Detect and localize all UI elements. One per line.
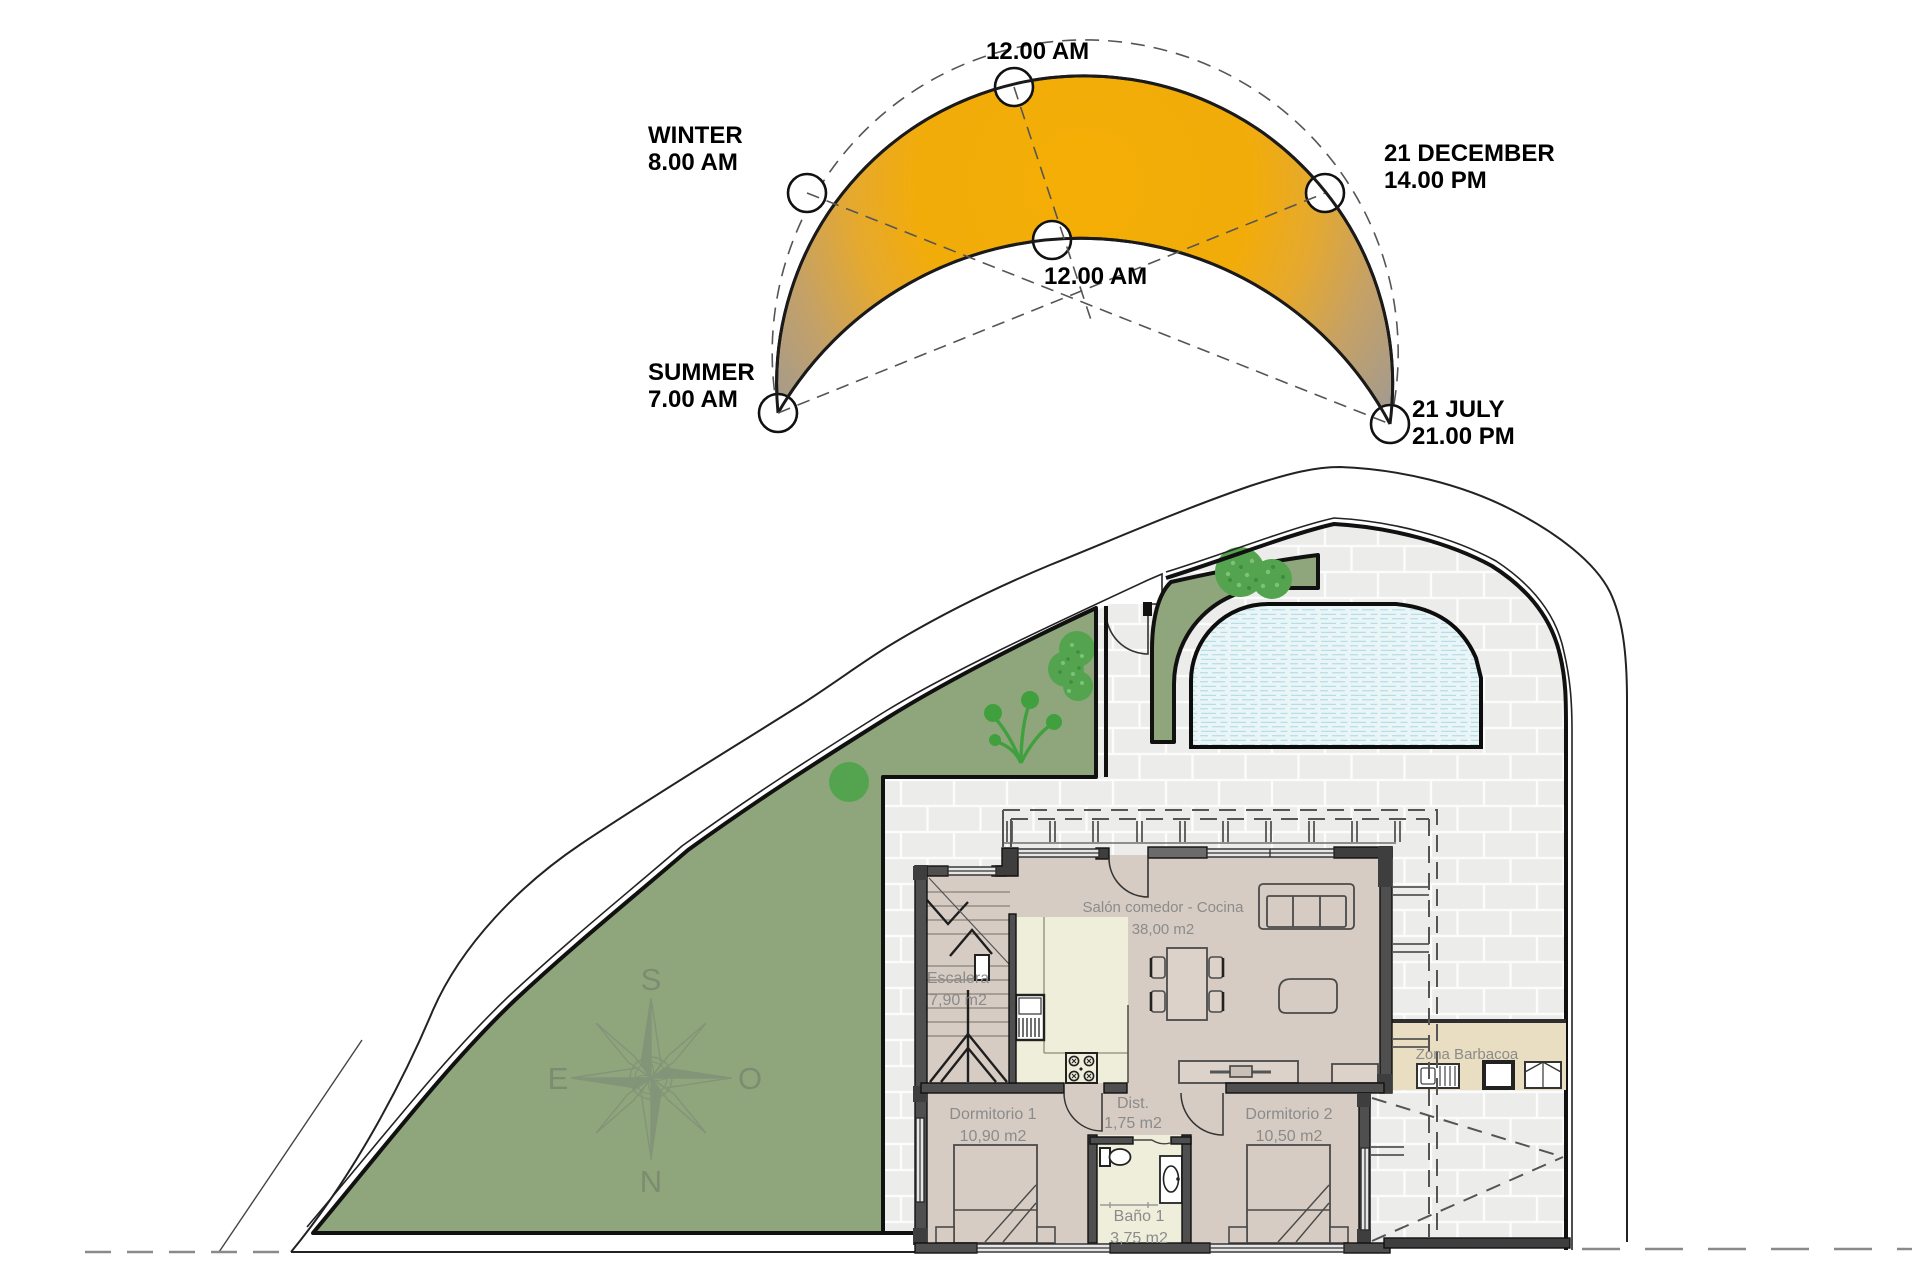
svg-text:Baño 1: Baño 1	[1114, 1208, 1165, 1225]
svg-text:Escalera: Escalera	[927, 970, 989, 987]
svg-text:O: O	[738, 1061, 762, 1096]
svg-text:12.00 AM: 12.00 AM	[986, 38, 1089, 65]
svg-text:7.00 AM: 7.00 AM	[648, 386, 738, 413]
svg-text:21 JULY: 21 JULY	[1412, 396, 1505, 423]
svg-text:8.00 AM: 8.00 AM	[648, 149, 738, 176]
svg-text:SUMMER: SUMMER	[648, 359, 755, 386]
svg-text:WINTER: WINTER	[648, 122, 743, 149]
svg-text:Dormitorio 1: Dormitorio 1	[949, 1106, 1036, 1123]
svg-text:1,75 m2: 1,75 m2	[1104, 1115, 1162, 1132]
svg-text:14.00 PM: 14.00 PM	[1384, 167, 1487, 194]
svg-text:21 DECEMBER: 21 DECEMBER	[1384, 140, 1555, 167]
svg-text:10,50 m2: 10,50 m2	[1256, 1128, 1323, 1145]
svg-text:Dist.: Dist.	[1117, 1095, 1149, 1112]
svg-text:Zona Barbacoa: Zona Barbacoa	[1416, 1046, 1519, 1063]
svg-text:Salón comedor - Cocina: Salón comedor - Cocina	[1083, 899, 1245, 916]
svg-text:E: E	[548, 1061, 569, 1096]
svg-text:38,00 m2: 38,00 m2	[1132, 921, 1195, 938]
svg-text:12.00 AM: 12.00 AM	[1044, 263, 1147, 290]
svg-text:10,90 m2: 10,90 m2	[960, 1128, 1027, 1145]
svg-text:N: N	[640, 1164, 662, 1199]
svg-text:Dormitorio 2: Dormitorio 2	[1245, 1106, 1332, 1123]
svg-text:3,75 m2: 3,75 m2	[1110, 1230, 1168, 1247]
svg-text:S: S	[641, 962, 662, 997]
svg-text:21.00 PM: 21.00 PM	[1412, 423, 1515, 450]
svg-text:7,90 m2: 7,90 m2	[929, 992, 987, 1009]
